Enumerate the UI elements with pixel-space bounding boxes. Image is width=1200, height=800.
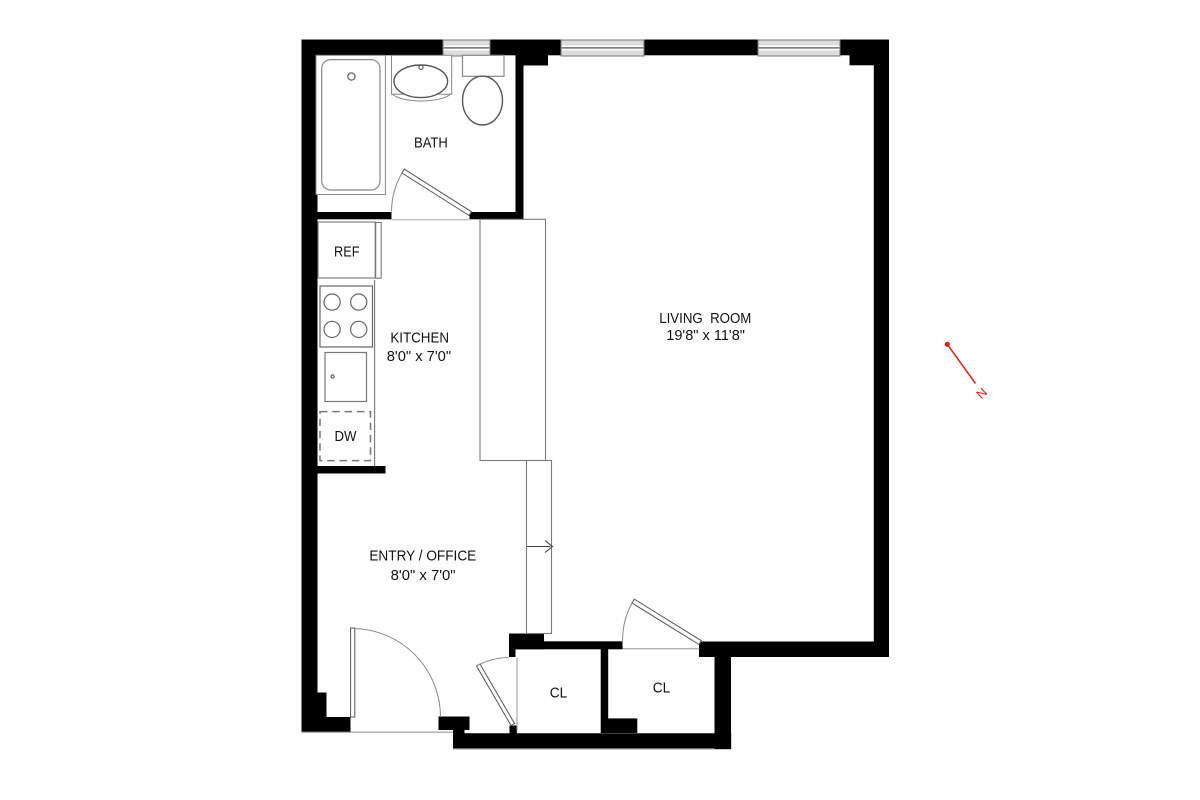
svg-text:REF: REF <box>334 244 360 261</box>
svg-text:DW: DW <box>335 428 358 445</box>
svg-text:19'8" x 11'8": 19'8" x 11'8" <box>666 327 745 344</box>
svg-text:CL: CL <box>653 679 671 696</box>
svg-text:8'0" x 7'0": 8'0" x 7'0" <box>391 567 456 584</box>
svg-text:8'0" x 7'0": 8'0" x 7'0" <box>387 348 451 365</box>
svg-text:LIVING ROOM: LIVING ROOM <box>659 310 751 327</box>
svg-text:BATH: BATH <box>414 135 448 152</box>
svg-text:ENTRY / OFFICE: ENTRY / OFFICE <box>369 548 476 565</box>
svg-text:KITCHEN: KITCHEN <box>390 329 449 346</box>
svg-text:CL: CL <box>550 684 568 701</box>
